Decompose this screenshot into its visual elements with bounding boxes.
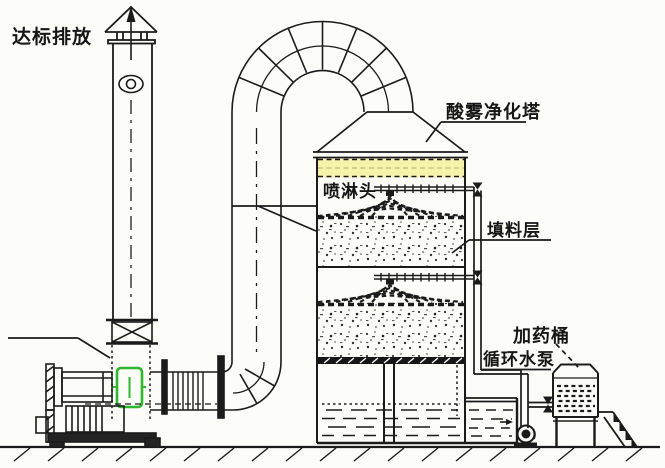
leader-tower: [426, 122, 526, 142]
demister-band: [318, 159, 464, 178]
label-circulating-pump: 循环水泵: [483, 349, 555, 370]
spray-header-1: [374, 185, 474, 197]
spray-cone-2: [318, 283, 463, 302]
flow-arrow-icon: [127, 6, 136, 60]
label-discharge: 达标排放: [12, 25, 92, 48]
arch-duct: [232, 22, 413, 113]
label-packing-layer: 填料层: [487, 220, 541, 241]
side-tank: [465, 398, 517, 443]
ground: [0, 447, 660, 461]
diagram-canvas: 达标排放 酸雾净化塔 喷淋头 填料层 加药桶 循环水泵: [0, 0, 665, 468]
duct-flange-1: [162, 360, 167, 414]
leader-spray-head: [232, 206, 316, 231]
leader-packing: [452, 240, 551, 253]
dosing-barrel: [553, 365, 638, 448]
suction-duct: [150, 356, 233, 418]
barrel-contents: [557, 386, 595, 411]
label-tower: 酸雾净化塔: [446, 101, 541, 123]
sump-section: [317, 364, 465, 443]
leader-discharge: [8, 338, 110, 358]
fan-access-door: [113, 368, 146, 407]
duct-flange-2: [218, 356, 224, 418]
label-spray-head: 喷淋头: [323, 181, 377, 202]
exhaust-stack: [105, 6, 158, 421]
valve-dosing-line: [543, 397, 553, 413]
duct-elbow: [222, 362, 281, 410]
leader-lines: [8, 122, 579, 370]
fan-assembly: [36, 364, 217, 447]
label-dosing-barrel: 加药桶: [512, 325, 570, 347]
riser-duct: [232, 112, 281, 362]
sump-water: [322, 404, 460, 436]
inlet-x-brace: [106, 320, 158, 344]
sampling-port: [119, 76, 143, 93]
fan-base-frame: [48, 433, 160, 447]
flow-direction-arrow: [500, 419, 513, 425]
ground-hatch: [14, 448, 642, 461]
barrel-stand: [553, 417, 598, 447]
tower-cone: [317, 112, 465, 152]
flexible-connector: [173, 372, 203, 410]
process-diagram: 达标排放 酸雾净化塔 喷淋头 填料层 加药桶 循环水泵: [0, 0, 665, 468]
fan-barrel: [54, 368, 112, 406]
support-grid: [318, 357, 464, 364]
purification-tower: [313, 112, 474, 443]
packing-bed-2: [318, 303, 464, 357]
packing-bed-1: [318, 216, 464, 267]
barrel-ladder: [598, 412, 638, 447]
